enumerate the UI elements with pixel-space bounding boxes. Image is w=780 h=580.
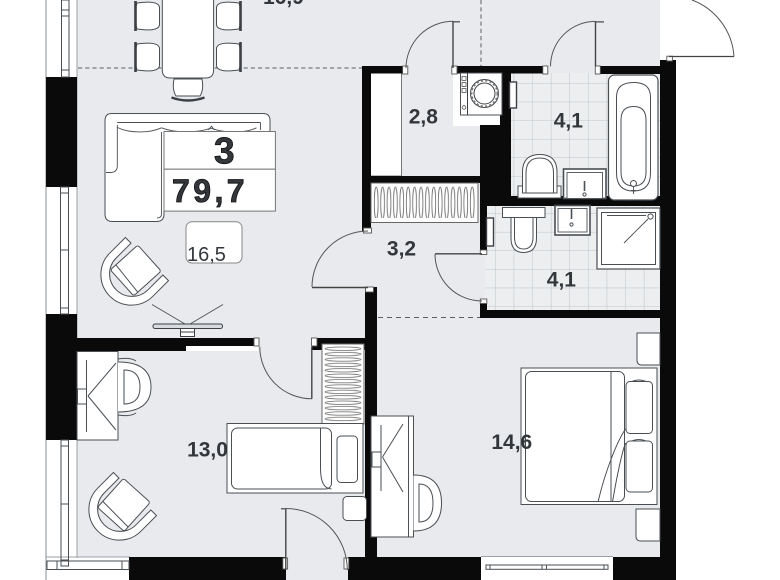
svg-text:14,6: 14,6 [491,431,532,454]
svg-text:13,0: 13,0 [187,439,228,462]
svg-text:4,1: 4,1 [554,110,584,133]
svg-text:3: 3 [214,130,235,171]
svg-text:16,5: 16,5 [187,244,226,266]
svg-text:3,2: 3,2 [387,238,416,261]
svg-text:79,7: 79,7 [172,173,248,209]
svg-text:4,1: 4,1 [547,269,577,292]
svg-text:16,9: 16,9 [263,0,304,9]
svg-text:2,8: 2,8 [409,106,439,129]
